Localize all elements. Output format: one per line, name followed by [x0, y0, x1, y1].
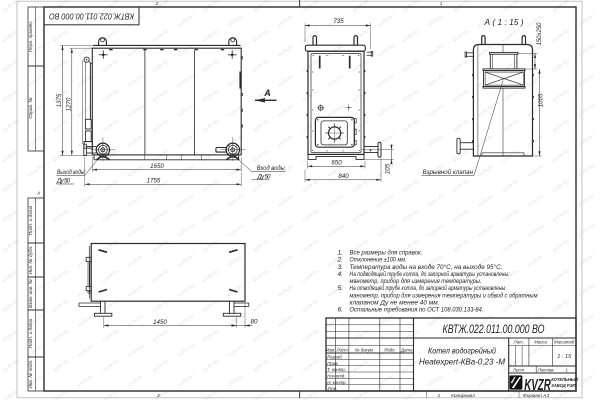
svg-text:Утв.: Утв.: [327, 386, 337, 391]
svg-text:150х250: 150х250: [537, 22, 543, 46]
svg-text:Все размеры для справок.: Все размеры для справок.: [350, 249, 423, 257]
svg-text:Отклонение ±100 мм.: Отклонение ±100 мм.: [350, 257, 407, 264]
svg-text:1.: 1.: [338, 250, 344, 257]
svg-text:1: 1: [438, 393, 441, 399]
svg-text:На отводящей трубе котла, до з: На отводящей трубе котла, до запорной ар…: [350, 284, 507, 292]
svg-text:KVZR: KVZR: [524, 377, 551, 394]
svg-text:Вход воды: Вход воды: [257, 166, 286, 172]
svg-text:клапаном Ду не менее 40 мм.: клапаном Ду не менее 40 мм.: [350, 300, 440, 307]
svg-text:735: 735: [333, 18, 344, 25]
svg-text:Подп.: Подп.: [384, 347, 395, 352]
svg-text:Лист: Лист: [336, 347, 348, 352]
svg-text:Справ. №: Справ. №: [28, 97, 33, 118]
svg-text:Ду 50: Ду 50: [56, 179, 71, 185]
svg-text:Взрывной клапан: Взрывной клапан: [423, 169, 474, 176]
svg-text:Температура воды на входе 70°С: Температура воды на входе 70°С, на выход…: [350, 263, 503, 271]
svg-text:650: 650: [331, 160, 342, 167]
svg-text:КОТЕЛЬНЫЙ: КОТЕЛЬНЫЙ: [551, 377, 579, 382]
svg-text:6.: 6.: [338, 307, 344, 314]
svg-text:Инв. № подл.: Инв. № подл.: [28, 359, 33, 388]
svg-text:манометр, прибор для измерения: манометр, прибор для измерения температу…: [350, 277, 482, 285]
svg-text:Ду 50: Ду 50: [257, 174, 272, 180]
svg-text:Дата: Дата: [400, 347, 413, 352]
svg-text:Формат А3: Формат А3: [523, 393, 550, 399]
svg-text:1005: 1005: [539, 93, 545, 107]
svg-text:Выход воды: Выход воды: [57, 170, 85, 176]
svg-text:манометр, прибор для измерения: манометр, прибор для измерения температу…: [350, 291, 538, 299]
svg-text:Лист: Лист: [512, 367, 524, 372]
svg-text:Масса: Масса: [534, 340, 547, 345]
svg-text:КВТЖ.022.011.00.000 ВО: КВТЖ.022.011.00.000 ВО: [49, 12, 134, 21]
svg-text:А ( 1 : 15 ): А ( 1 : 15 ): [483, 18, 523, 27]
svg-text:3.: 3.: [338, 264, 344, 271]
svg-text:2: 2: [155, 1, 159, 6]
svg-text:1450: 1450: [153, 319, 167, 326]
svg-text:Изм.: Изм.: [326, 347, 335, 352]
svg-text:Инв. № дубл.: Инв. № дубл.: [28, 246, 33, 275]
svg-text:Копировал: Копировал: [451, 393, 475, 399]
svg-text:ЗАВОД РЭП: ЗАВОД РЭП: [551, 383, 576, 388]
svg-text:2.: 2.: [337, 257, 344, 264]
svg-text:Перв. примен.: Перв. примен.: [28, 21, 33, 52]
svg-text:1375: 1375: [56, 93, 63, 107]
svg-text:2: 2: [156, 393, 160, 398]
svg-text:Heatexpert-КВа-0,23 -М: Heatexpert-КВа-0,23 -М: [419, 356, 506, 366]
svg-text:Листов: Листов: [537, 367, 554, 372]
svg-text:80: 80: [251, 318, 258, 325]
svg-text:Лит.: Лит.: [513, 340, 524, 345]
svg-text:Взам. инв. №: Взам. инв. №: [28, 279, 33, 308]
svg-text:Масштаб: Масштаб: [554, 340, 575, 345]
svg-text:На подводящей трубе котла, до: На подводящей трубе котла, до запорной а…: [350, 270, 510, 278]
svg-text:1755: 1755: [147, 178, 161, 185]
svg-text:840: 840: [338, 173, 349, 180]
svg-text:1 : 15: 1 : 15: [557, 354, 572, 360]
svg-text:№ докум.: № докум.: [355, 347, 374, 352]
svg-text:Остальные требования по ОСТ 10: Остальные требования по ОСТ 108.030.133-…: [350, 306, 484, 314]
svg-text:А: А: [263, 88, 270, 98]
svg-text:Подп. и дата: Подп. и дата: [28, 205, 33, 235]
svg-text:4.: 4.: [338, 271, 344, 278]
svg-text:105: 105: [384, 163, 391, 174]
svg-text:Т. контр.: Т. контр.: [327, 367, 346, 372]
svg-text:КВТЖ.022.011.00.000 ВО: КВТЖ.022.011.00.000 ВО: [443, 324, 545, 336]
svg-text:5.: 5.: [338, 285, 344, 292]
svg-text:Нач.отд.: Нач.отд.: [327, 374, 345, 379]
svg-text:1: 1: [440, 1, 443, 6]
svg-text:Разраб.: Разраб.: [327, 354, 343, 359]
svg-text:Подп. и дата: Подп. и дата: [28, 318, 33, 348]
svg-text:Котел водогрейный: Котел водогрейный: [428, 345, 496, 355]
svg-text:А: А: [36, 191, 40, 196]
svg-text:Н. контр.: Н. контр.: [327, 380, 346, 385]
svg-text:1270: 1270: [65, 97, 72, 111]
svg-text:1650: 1650: [150, 163, 164, 170]
svg-text:Пров.: Пров.: [327, 361, 338, 366]
